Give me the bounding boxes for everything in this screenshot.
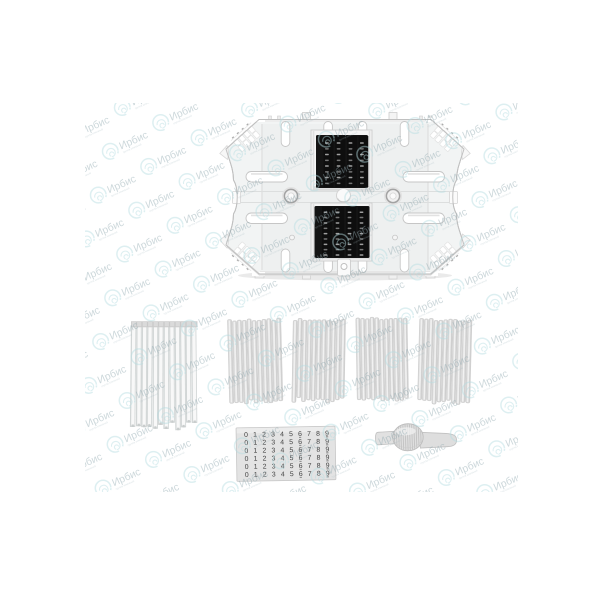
svg-text:0: 0 bbox=[245, 456, 249, 463]
svg-text:3: 3 bbox=[271, 447, 275, 454]
svg-text:7: 7 bbox=[308, 463, 312, 470]
svg-text:8: 8 bbox=[316, 455, 320, 462]
svg-text:5: 5 bbox=[290, 471, 294, 478]
svg-text:5: 5 bbox=[290, 463, 294, 470]
svg-text:1: 1 bbox=[254, 456, 258, 463]
svg-text:8: 8 bbox=[316, 431, 320, 438]
svg-text:0: 0 bbox=[245, 464, 249, 471]
svg-text:4: 4 bbox=[281, 471, 285, 478]
svg-text:5: 5 bbox=[289, 431, 293, 438]
svg-text:3: 3 bbox=[272, 471, 276, 478]
svg-text:5: 5 bbox=[289, 439, 293, 446]
svg-text:2: 2 bbox=[262, 448, 266, 455]
svg-text:7: 7 bbox=[307, 431, 311, 438]
svg-text:4: 4 bbox=[280, 439, 284, 446]
svg-text:2: 2 bbox=[263, 456, 267, 463]
svg-text:1: 1 bbox=[254, 464, 258, 471]
svg-text:1: 1 bbox=[253, 448, 257, 455]
